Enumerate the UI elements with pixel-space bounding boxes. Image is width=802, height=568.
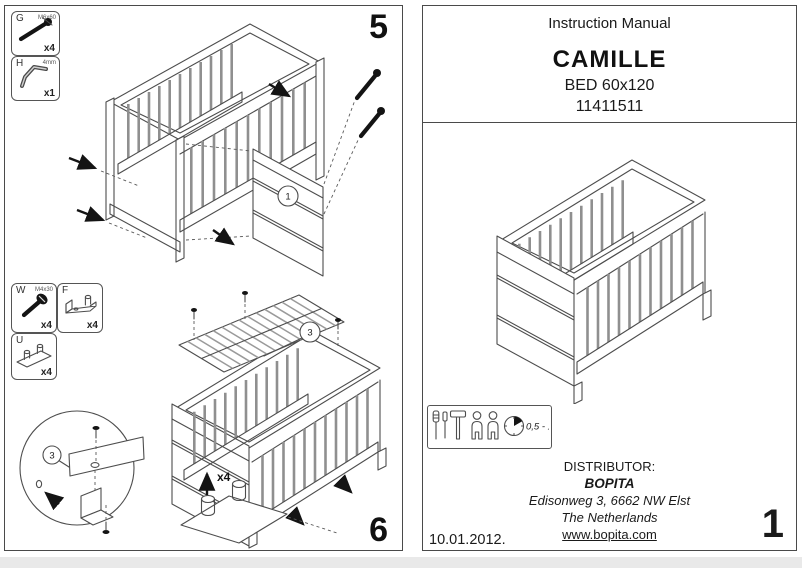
distributor-heading: DISTRIBUTOR:	[423, 458, 796, 475]
duration-label: 0,5 - 1	[526, 422, 549, 433]
info-icons: 0,5 - 1	[428, 406, 549, 446]
bolt-icon	[12, 16, 59, 44]
projection-line	[324, 100, 355, 184]
cover-header: Instruction Manual CAMILLE BED 60x120 11…	[423, 6, 796, 123]
revision-date: 10.01.2012.	[429, 532, 506, 548]
direction-arrow-icon	[77, 210, 103, 220]
step5-diagram: 1	[55, 18, 395, 288]
bolt-icon	[361, 107, 385, 136]
hardware-qty: x4	[44, 43, 55, 54]
direction-arrow-icon	[341, 482, 351, 492]
part-number: 3	[307, 328, 312, 339]
article-number: 11411511	[423, 98, 796, 116]
part-number: 3	[49, 451, 54, 462]
direction-arrow-icon	[269, 84, 289, 96]
end-panel	[497, 236, 574, 386]
distributor-name: BOPITA	[423, 475, 796, 492]
detail-circle: 3	[20, 411, 144, 534]
page-number: 1	[762, 504, 784, 544]
product-type: BED 60x120	[423, 77, 796, 95]
feet-quantity: x4	[217, 470, 231, 484]
assembly-page: 5 6 G M6x60 x4 H 4mm x1 W M4x30 x4	[4, 5, 403, 551]
direction-arrow-icon	[69, 158, 95, 168]
hardware-box-h: H 4mm x1	[11, 56, 60, 101]
manual-title: Instruction Manual	[423, 15, 796, 32]
hardware-qty: x1	[44, 88, 55, 99]
distributor-address2: The Netherlands	[423, 509, 796, 526]
hardware-box-g: G M6x60 x4	[11, 11, 60, 56]
distributor-address1: Edisonweg 3, 6662 NW Elst	[423, 492, 796, 509]
hammer-icon	[451, 411, 466, 439]
screwdriver-icon	[443, 412, 447, 438]
person-icon	[472, 412, 482, 439]
part-callout-1: 1	[278, 186, 298, 206]
clock-icon	[505, 417, 524, 436]
page-edge-shadow	[0, 557, 802, 568]
product-name: CAMILLE	[423, 46, 796, 74]
person-icon	[488, 412, 498, 439]
step6-diagram: 3 3	[11, 288, 403, 552]
cover-page: Instruction Manual CAMILLE BED 60x120 11…	[422, 5, 797, 551]
bolt-icon	[357, 69, 381, 98]
end-panel-part: 1	[253, 149, 323, 276]
allen-key-icon	[12, 61, 59, 89]
screw-icon	[191, 308, 197, 340]
product-illustration	[453, 146, 773, 404]
crib-frame	[497, 160, 711, 404]
projection-line	[186, 236, 251, 240]
projection-line	[324, 138, 359, 214]
part-number: 1	[285, 192, 290, 203]
distributor-block: DISTRIBUTOR: BOPITA Edisonweg 3, 6662 NW…	[423, 458, 796, 543]
screwdriver-icon	[433, 411, 439, 439]
assembly-info-box: 0,5 - 1	[427, 405, 552, 449]
